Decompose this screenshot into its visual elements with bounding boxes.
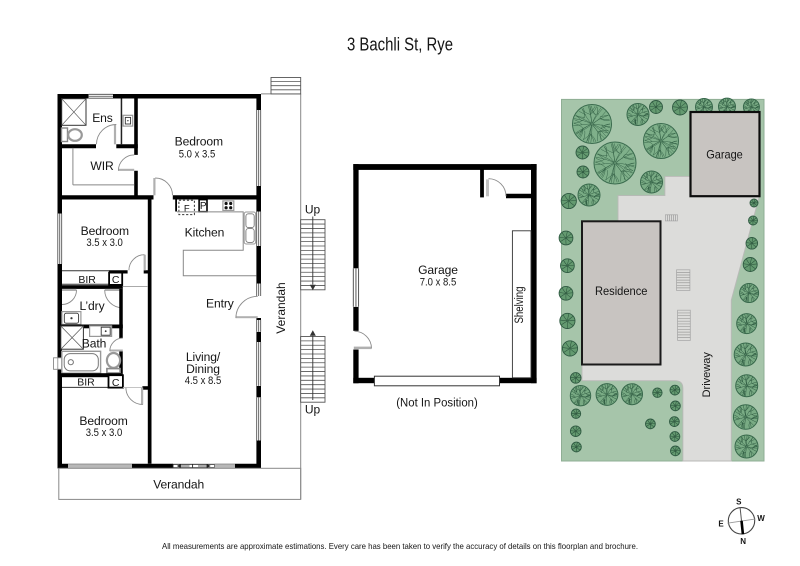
- svg-text:Verandah: Verandah: [274, 282, 288, 333]
- svg-text:Garage: Garage: [418, 263, 458, 277]
- svg-text:Bath: Bath: [82, 337, 106, 351]
- svg-text:W: W: [757, 514, 765, 523]
- svg-text:WIR: WIR: [90, 159, 114, 173]
- svg-text:Kitchen: Kitchen: [185, 226, 225, 240]
- svg-text:Entry: Entry: [206, 297, 235, 311]
- svg-text:C: C: [112, 274, 120, 286]
- svg-text:BIR: BIR: [77, 377, 95, 389]
- svg-text:S: S: [736, 497, 742, 506]
- svg-text:3 Bachli St, Rye: 3 Bachli St, Rye: [347, 35, 453, 55]
- svg-text:Up: Up: [305, 403, 321, 417]
- svg-text:3.5 x 3.0: 3.5 x 3.0: [86, 237, 123, 249]
- svg-text:C: C: [112, 377, 120, 389]
- svg-text:Dining: Dining: [186, 362, 220, 376]
- svg-text:Bedroom: Bedroom: [81, 224, 129, 238]
- svg-text:(Not In Position): (Not In Position): [396, 396, 478, 410]
- svg-text:Bedroom: Bedroom: [175, 135, 223, 149]
- svg-text:F: F: [184, 203, 190, 214]
- svg-text:E: E: [718, 519, 724, 528]
- svg-text:5.0 x 3.5: 5.0 x 3.5: [179, 149, 216, 161]
- svg-text:Residence: Residence: [595, 284, 648, 298]
- svg-text:Driveway: Driveway: [701, 352, 713, 398]
- svg-text:Garage: Garage: [706, 148, 743, 162]
- svg-text:L’dry: L’dry: [79, 299, 105, 313]
- svg-text:Shelving: Shelving: [514, 287, 526, 324]
- svg-text:Up: Up: [305, 203, 321, 217]
- svg-text:Verandah: Verandah: [153, 477, 204, 491]
- svg-text:BIR: BIR: [78, 274, 96, 286]
- svg-text:P: P: [200, 201, 207, 212]
- svg-text:All measurements are approxima: All measurements are approximate estimat…: [162, 542, 638, 551]
- svg-text:3.5 x 3.0: 3.5 x 3.0: [86, 427, 123, 439]
- svg-text:Ens: Ens: [92, 111, 113, 125]
- svg-text:7.0 x 8.5: 7.0 x 8.5: [420, 276, 457, 288]
- svg-text:Bedroom: Bedroom: [79, 414, 127, 428]
- svg-text:4.5 x 8.5: 4.5 x 8.5: [185, 375, 222, 387]
- svg-text:N: N: [740, 537, 746, 546]
